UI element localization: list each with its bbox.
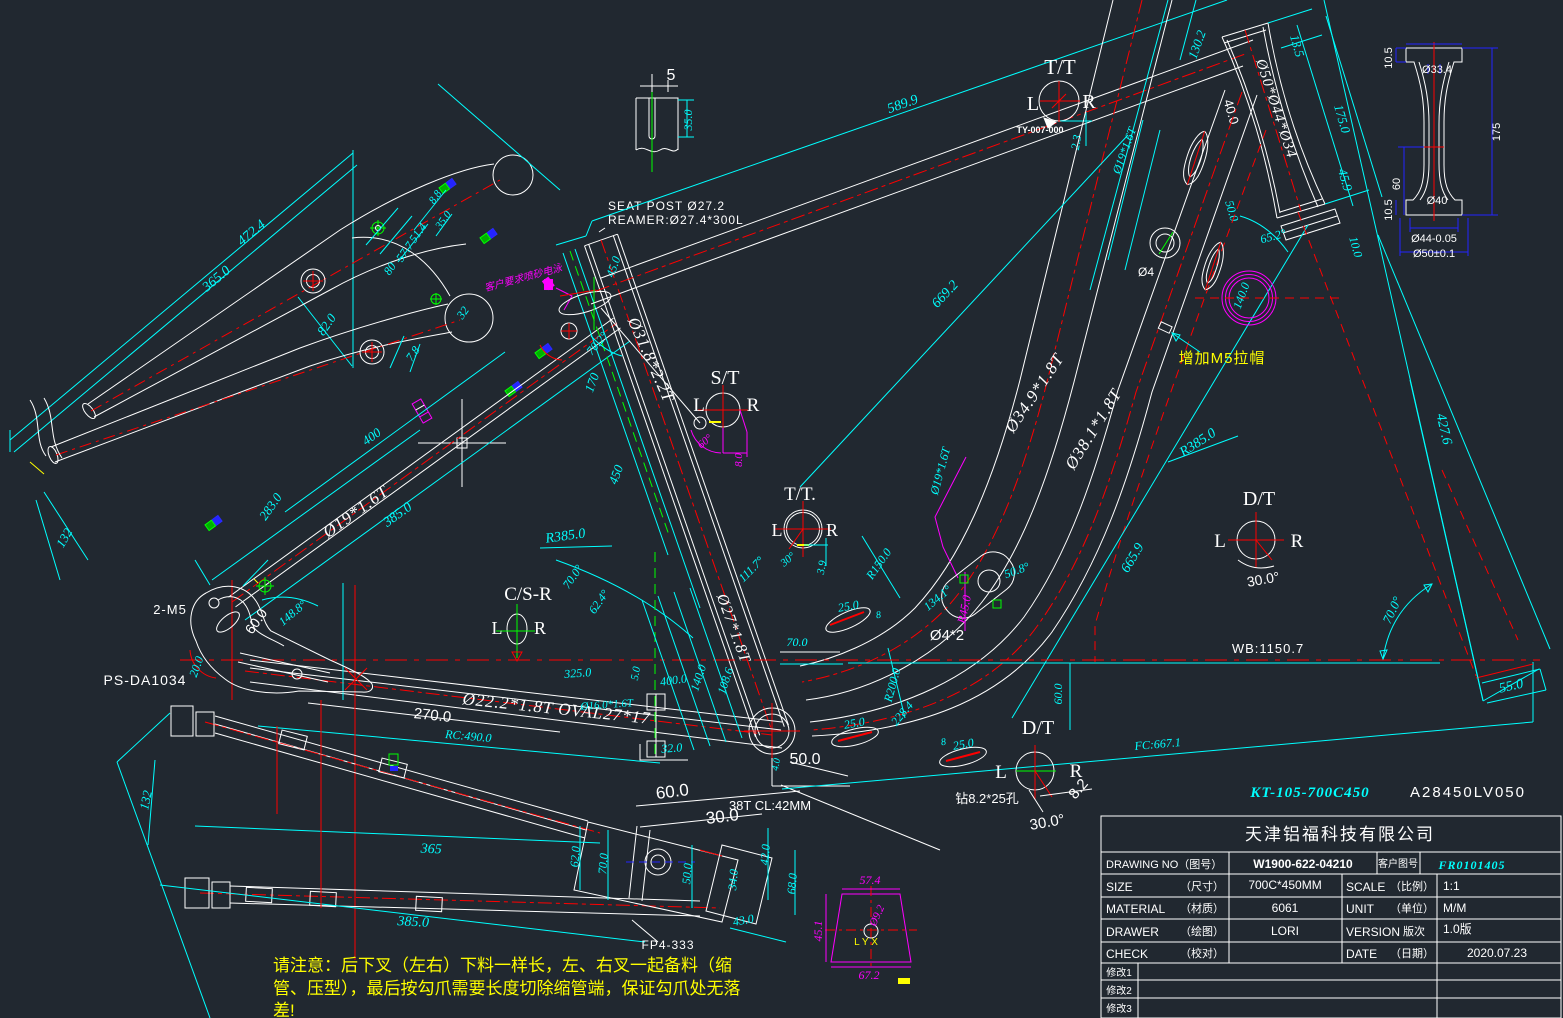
svg-text:TY-007-000: TY-007-000 [1016, 125, 1063, 135]
svg-text:R: R [747, 395, 760, 416]
svg-text:60.0: 60.0 [655, 780, 690, 803]
svg-text:DATE: DATE [1346, 947, 1377, 961]
svg-text:（材质）: （材质） [1180, 901, 1224, 915]
svg-text:钻8.2*25孔: 钻8.2*25孔 [955, 791, 1019, 806]
svg-text:请注意：后下叉（左右）下料一样长，左、右叉一起备料（缩: 请注意：后下叉（左右）下料一样长，左、右叉一起备料（缩 [273, 956, 732, 975]
svg-text:UNIT: UNIT [1346, 902, 1375, 916]
svg-text:2-M5: 2-M5 [153, 602, 187, 617]
svg-text:6061: 6061 [1272, 901, 1299, 915]
svg-text:L: L [693, 395, 705, 416]
svg-text:（校对）: （校对） [1180, 946, 1224, 960]
svg-text:修改3: 修改3 [1106, 1002, 1132, 1015]
svg-text:T/T.: T/T. [784, 484, 816, 505]
svg-text:1:1: 1:1 [1443, 879, 1460, 893]
svg-text:L: L [772, 520, 783, 540]
svg-text:差!: 差! [273, 1001, 295, 1018]
svg-text:L: L [995, 762, 1007, 783]
svg-text:PS-DA1034: PS-DA1034 [104, 672, 187, 688]
svg-text:R: R [1291, 531, 1304, 552]
svg-text:32.0: 32.0 [660, 740, 683, 756]
svg-text:SIZE: SIZE [1106, 880, 1133, 894]
svg-text:SCALE: SCALE [1346, 880, 1385, 894]
svg-text:700C*450MM: 700C*450MM [1248, 878, 1321, 892]
svg-text:10.5: 10.5 [1383, 47, 1395, 68]
svg-text:45.1: 45.1 [811, 921, 825, 942]
svg-text:5.0: 5.0 [629, 665, 643, 681]
svg-text:LORI: LORI [1271, 924, 1299, 938]
svg-text:Ø4: Ø4 [1138, 265, 1154, 279]
svg-text:60.0: 60.0 [1051, 684, 1065, 705]
svg-text:10.5: 10.5 [1383, 199, 1395, 220]
svg-text:1.0版: 1.0版 [1443, 922, 1472, 936]
svg-text:57.4: 57.4 [860, 873, 881, 887]
svg-text:（绘图）: （绘图） [1180, 924, 1224, 938]
svg-text:WB:1150.7: WB:1150.7 [1232, 641, 1304, 656]
svg-text:385.0: 385.0 [396, 914, 429, 931]
svg-text:62.0: 62.0 [567, 846, 583, 868]
svg-text:175: 175 [1491, 123, 1503, 141]
svg-text:增加M5拉帽: 增加M5拉帽 [1179, 350, 1266, 367]
svg-text:38T CL:42MM: 38T CL:42MM [729, 798, 811, 813]
svg-text:R: R [826, 520, 838, 540]
svg-text:5: 5 [667, 67, 676, 84]
svg-text:版次: 版次 [1403, 924, 1425, 938]
svg-text:（尺寸）: （尺寸） [1180, 879, 1224, 893]
svg-text:365: 365 [419, 841, 442, 857]
svg-text:70.0: 70.0 [787, 635, 808, 649]
svg-text:325.0: 325.0 [563, 665, 592, 681]
svg-text:68.0: 68.0 [784, 873, 800, 895]
svg-text:35.0: 35.0 [681, 110, 695, 132]
svg-text:VERSION: VERSION [1346, 925, 1400, 939]
svg-text:C/S-R: C/S-R [504, 584, 552, 605]
svg-text:Ø50±0.1: Ø50±0.1 [1413, 248, 1455, 260]
svg-text:L: L [492, 618, 503, 638]
svg-text:L: L [1027, 93, 1039, 115]
svg-text:Ø44-0.05: Ø44-0.05 [1411, 233, 1457, 245]
svg-text:M/M: M/M [1443, 901, 1466, 915]
svg-text:Ø40: Ø40 [1427, 195, 1448, 207]
svg-text:管、压型），最后按勾爪需要长度切除缩管端，保证勾爪处无落: 管、压型），最后按勾爪需要长度切除缩管端，保证勾爪处无落 [273, 979, 741, 998]
svg-text:60: 60 [1391, 178, 1403, 190]
svg-text:Ø4*2: Ø4*2 [930, 627, 964, 644]
svg-text:8.0: 8.0 [733, 453, 745, 467]
svg-text:KT-105-700C450: KT-105-700C450 [1249, 785, 1369, 801]
svg-text:A28450LV050: A28450LV050 [1410, 784, 1526, 801]
svg-text:D/T: D/T [1243, 488, 1275, 510]
svg-text:修改1: 修改1 [1106, 966, 1132, 979]
svg-text:50.0: 50.0 [679, 863, 695, 885]
svg-text:W1900-622-04210: W1900-622-04210 [1253, 857, 1353, 871]
svg-text:FR0101405: FR0101405 [1437, 858, 1505, 872]
svg-text:67.2: 67.2 [859, 968, 880, 982]
svg-text:D/T: D/T [1022, 717, 1054, 739]
svg-text:（单位）: （单位） [1390, 901, 1434, 915]
svg-text:2020.07.23: 2020.07.23 [1467, 946, 1527, 960]
svg-text:天津铝福科技有限公司: 天津铝福科技有限公司 [1245, 825, 1435, 844]
svg-text:L: L [1214, 531, 1226, 552]
svg-text:修改2: 修改2 [1106, 984, 1132, 997]
svg-text:34.0: 34.0 [725, 869, 741, 892]
svg-text:R: R [1082, 91, 1096, 113]
svg-text:R: R [534, 618, 546, 638]
svg-text:T-6: T-6 [900, 979, 910, 986]
svg-text:DRAWER: DRAWER [1106, 925, 1159, 939]
svg-text:CHECK: CHECK [1106, 947, 1148, 961]
svg-text:42.0: 42.0 [757, 844, 773, 866]
svg-text:T/T: T/T [1044, 55, 1076, 79]
svg-text:客户图号: 客户图号 [1378, 857, 1418, 870]
svg-text:2.3: 2.3 [1068, 134, 1084, 151]
svg-text:4.0: 4.0 [770, 757, 783, 771]
svg-text:DRAWING NO（图号）: DRAWING NO（图号） [1106, 858, 1222, 871]
svg-text:SEAT POST Ø27.2: SEAT POST Ø27.2 [608, 199, 725, 213]
svg-text:L Y X: L Y X [854, 937, 878, 948]
svg-text:70.0: 70.0 [595, 853, 611, 875]
svg-text:（比例）: （比例） [1390, 879, 1434, 893]
svg-text:S/T: S/T [711, 367, 740, 389]
svg-text:Ø33.4: Ø33.4 [1422, 64, 1452, 76]
svg-text:MATERIAL: MATERIAL [1106, 902, 1165, 916]
svg-text:REAMER:Ø27.4*300L: REAMER:Ø27.4*300L [608, 213, 744, 227]
svg-text:FP4-333: FP4-333 [641, 938, 694, 952]
svg-text:（日期）: （日期） [1390, 947, 1434, 960]
